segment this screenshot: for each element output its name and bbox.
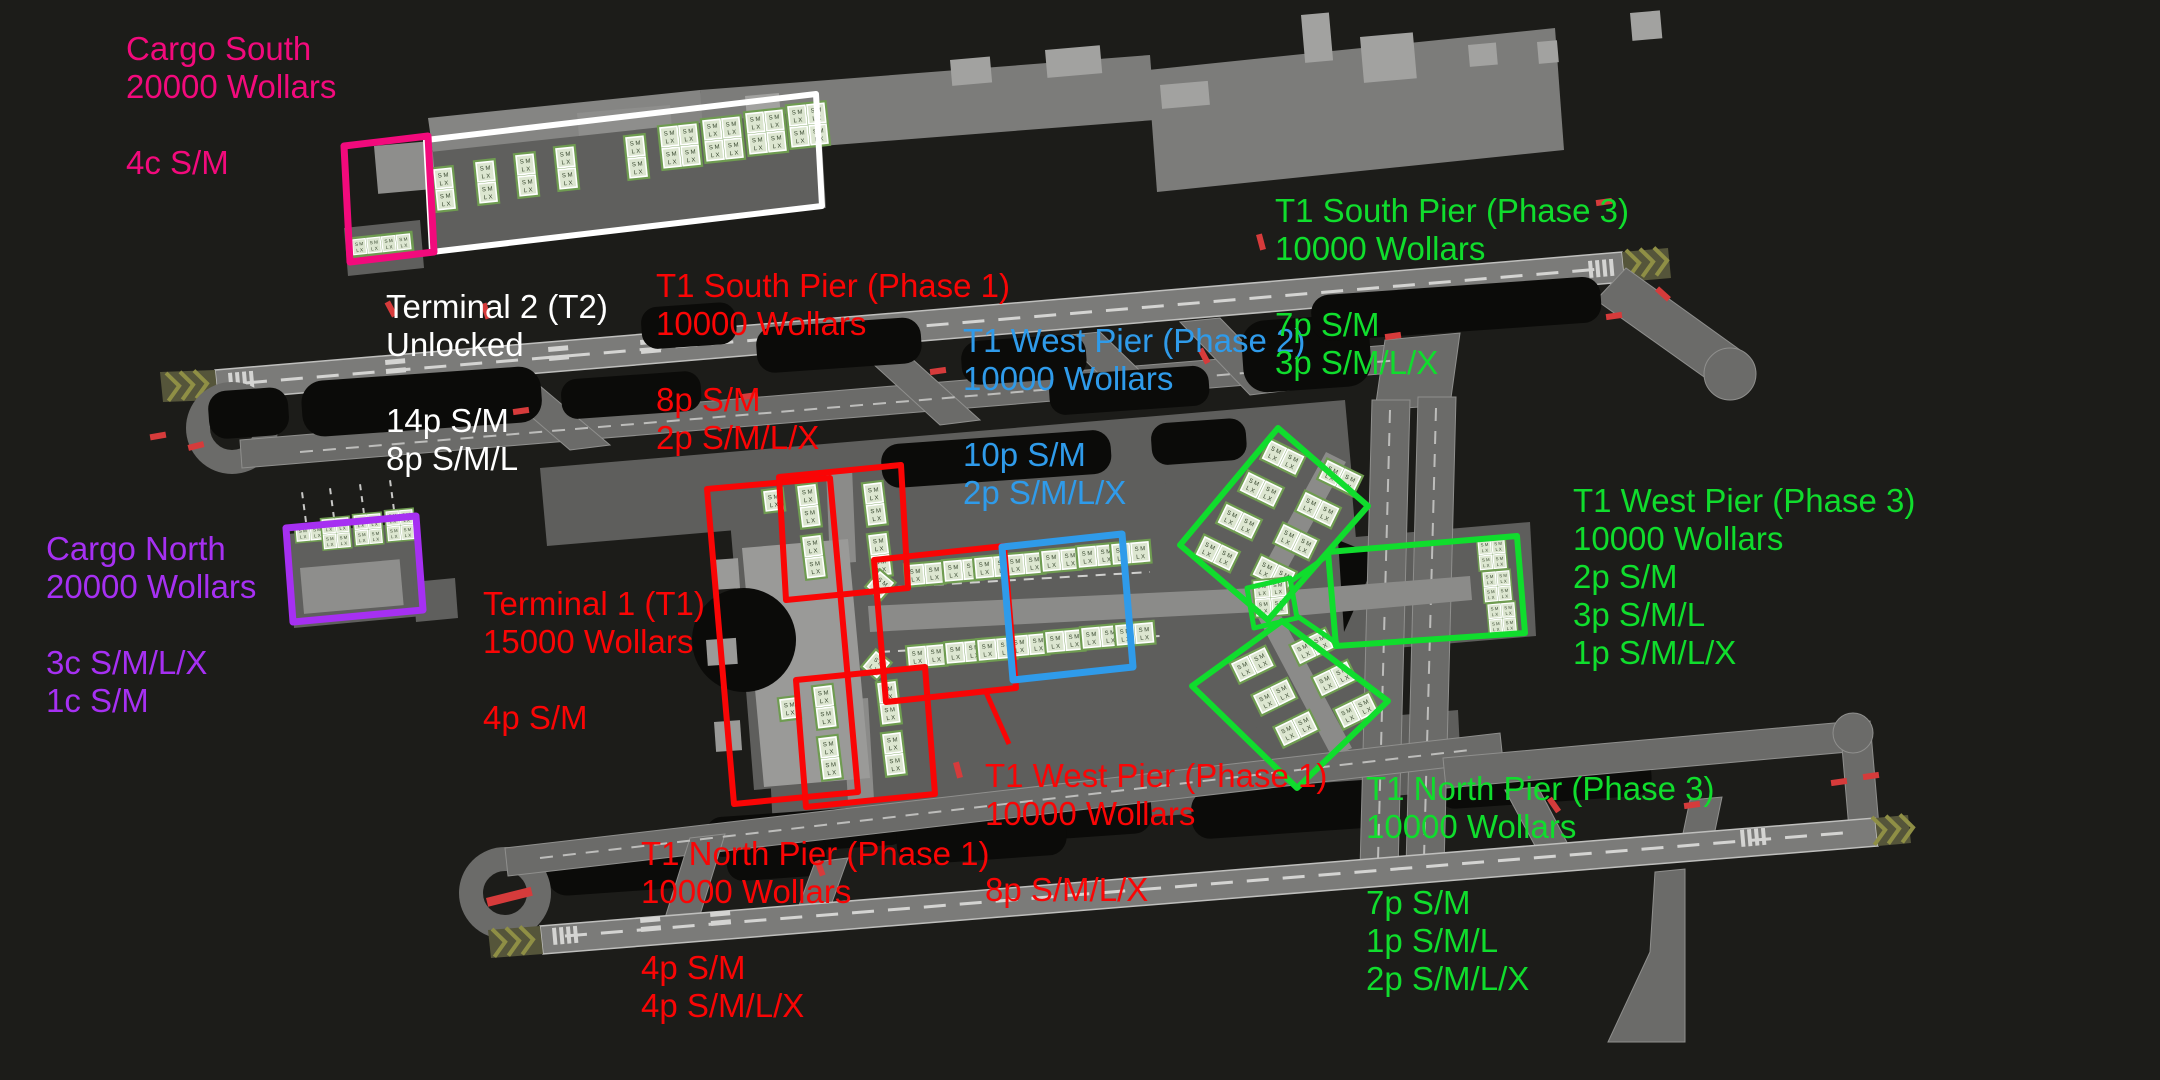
annotation-t1-north-pier-phase3: T1 North Pier (Phase 3) 10000 Wollars 7p…	[1366, 770, 1714, 998]
annotation-cargo-south: Cargo South 20000 Wollars 4c S/M	[126, 30, 336, 182]
annotation-line	[1275, 268, 1629, 306]
annotation-line: 4p S/M	[641, 949, 989, 987]
annotation-line: 8p S/M	[656, 381, 1010, 419]
annotation-line	[46, 606, 256, 644]
annotation-line: 1p S/M/L/X	[1573, 634, 1915, 672]
annotation-line: Cargo South	[126, 30, 336, 68]
annotation-line	[1366, 846, 1714, 884]
annotation-line: 2p S/M/L/X	[1366, 960, 1714, 998]
annotation-line: 3p S/M/L	[1573, 596, 1915, 634]
annotation-line: 7p S/M	[1275, 306, 1629, 344]
annotation-line	[641, 911, 989, 949]
annotation-line: T1 West Pier (Phase 1)	[985, 757, 1327, 795]
annotation-line: 4p S/M/L/X	[641, 987, 989, 1025]
annotation-line: 3c S/M/L/X	[46, 644, 256, 682]
annotation-line	[985, 833, 1327, 871]
annotation-line: T1 West Pier (Phase 3)	[1573, 482, 1915, 520]
annotation-line: T1 South Pier (Phase 1)	[656, 267, 1010, 305]
annotation-line: T1 West Pier (Phase 2)	[963, 322, 1305, 360]
annotation-line: 8p S/M/L	[386, 440, 608, 478]
annotation-line: 10000 Wollars	[656, 305, 1010, 343]
annotation-line: Terminal 2 (T2)	[386, 288, 608, 326]
annotation-t1-west-pier-phase1: T1 West Pier (Phase 1) 10000 Wollars 8p …	[985, 757, 1327, 909]
annotation-line: T1 North Pier (Phase 3)	[1366, 770, 1714, 808]
annotation-line: 8p S/M/L/X	[985, 871, 1327, 909]
cargo-north-apron	[288, 480, 458, 628]
annotation-line: Cargo North	[46, 530, 256, 568]
annotation-line	[656, 343, 1010, 381]
screenshot-stage: S M L X	[0, 0, 2160, 1080]
annotation-line: 1c S/M	[46, 682, 256, 720]
annotation-line: 10000 Wollars	[1366, 808, 1714, 846]
annotation-line: Terminal 1 (T1)	[483, 585, 705, 623]
annotation-line: 10000 Wollars	[641, 873, 989, 911]
annotation-line: 10000 Wollars	[1275, 230, 1629, 268]
annotation-line: 10000 Wollars	[963, 360, 1305, 398]
annotation-t1-south-pier-phase1: T1 South Pier (Phase 1) 10000 Wollars 8p…	[656, 267, 1010, 457]
annotation-line: 20000 Wollars	[46, 568, 256, 606]
annotation-t1-west-pier-phase3: T1 West Pier (Phase 3) 10000 Wollars 2p …	[1573, 482, 1915, 672]
annotation-line: 4p S/M	[483, 699, 705, 737]
annotation-line: Unlocked	[386, 326, 608, 364]
annotation-line	[963, 398, 1305, 436]
annotation-line: 14p S/M	[386, 402, 608, 440]
annotation-cargo-north: Cargo North 20000 Wollars 3c S/M/L/X 1c …	[46, 530, 256, 720]
annotation-line: 4c S/M	[126, 144, 336, 182]
annotation-line: 20000 Wollars	[126, 68, 336, 106]
annotation-t1-west-pier-phase2: T1 West Pier (Phase 2) 10000 Wollars 10p…	[963, 322, 1305, 512]
annotation-line	[483, 661, 705, 699]
annotation-line	[126, 106, 336, 144]
annotation-line	[386, 364, 608, 402]
annotation-terminal-2: Terminal 2 (T2) Unlocked 14p S/M 8p S/M/…	[386, 288, 608, 478]
annotation-line: 10p S/M	[963, 436, 1305, 474]
annotation-line: T1 North Pier (Phase 1)	[641, 835, 989, 873]
annotation-line: 15000 Wollars	[483, 623, 705, 661]
annotation-line: T1 South Pier (Phase 3)	[1275, 192, 1629, 230]
annotation-line: 2p S/M/L/X	[656, 419, 1010, 457]
annotation-t1-south-pier-phase3: T1 South Pier (Phase 3) 10000 Wollars 7p…	[1275, 192, 1629, 382]
annotation-terminal-1: Terminal 1 (T1) 15000 Wollars 4p S/M	[483, 585, 705, 737]
annotation-line: 10000 Wollars	[1573, 520, 1915, 558]
annotation-t1-north-pier-phase1: T1 North Pier (Phase 1) 10000 Wollars 4p…	[641, 835, 989, 1025]
annotation-line: 1p S/M/L	[1366, 922, 1714, 960]
annotation-line: 2p S/M	[1573, 558, 1915, 596]
annotation-line: 10000 Wollars	[985, 795, 1327, 833]
annotation-line: 7p S/M	[1366, 884, 1714, 922]
annotation-line: 3p S/M/L/X	[1275, 344, 1629, 382]
annotation-line: 2p S/M/L/X	[963, 474, 1305, 512]
